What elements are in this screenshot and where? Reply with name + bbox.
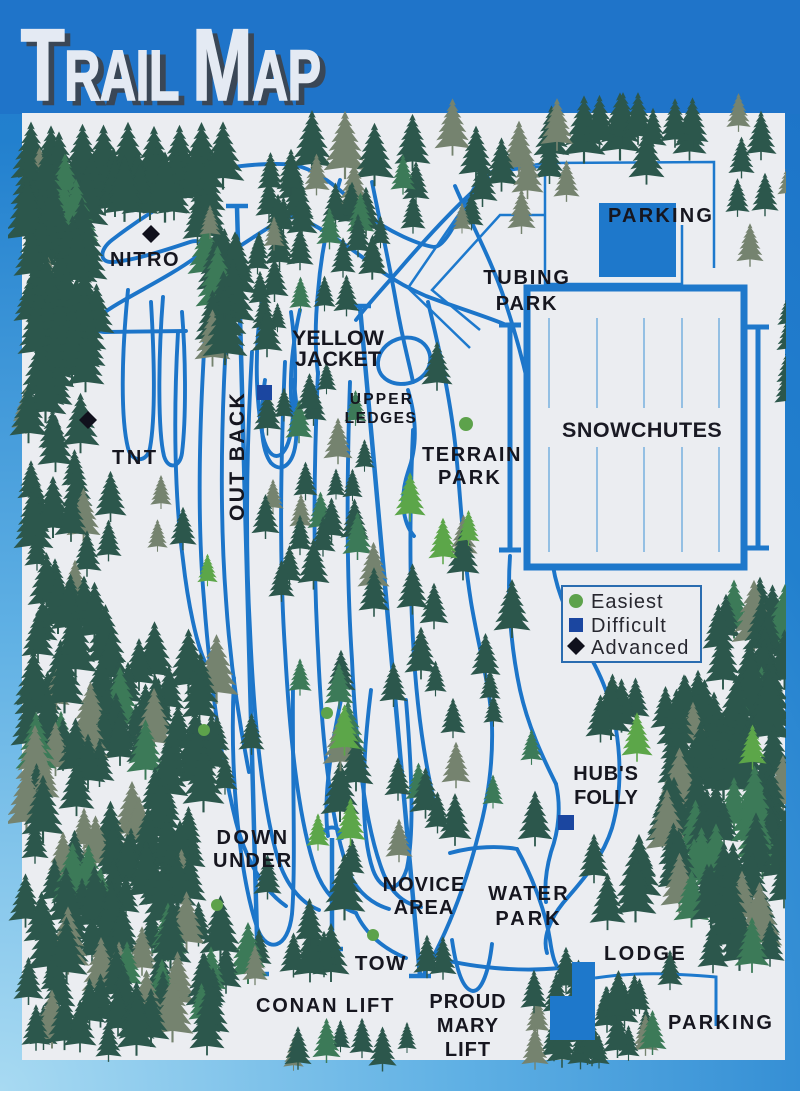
svg-text:UPPER: UPPER xyxy=(350,391,414,408)
svg-text:LODGE: LODGE xyxy=(604,943,687,965)
svg-text:AREA: AREA xyxy=(394,897,455,919)
svg-text:DOWN: DOWN xyxy=(217,827,290,849)
svg-text:TERRAIN: TERRAIN xyxy=(422,444,522,466)
svg-text:PARK: PARK xyxy=(496,293,558,315)
svg-text:MARY: MARY xyxy=(437,1015,499,1037)
svg-text:FOLLY: FOLLY xyxy=(574,787,638,809)
svg-text:SNOWCHUTES: SNOWCHUTES xyxy=(562,418,722,442)
svg-text:WATER: WATER xyxy=(488,883,570,905)
svg-text:TNT: TNT xyxy=(112,447,159,469)
svg-text:UNDER: UNDER xyxy=(213,850,293,872)
svg-text:CONAN LIFT: CONAN LIFT xyxy=(256,995,395,1017)
svg-text:PARK: PARK xyxy=(495,908,562,930)
svg-text:NOVICE: NOVICE xyxy=(383,874,466,896)
svg-text:JACKET: JACKET xyxy=(295,347,381,371)
svg-text:LIFT: LIFT xyxy=(445,1039,491,1061)
svg-text:NITRO: NITRO xyxy=(110,249,180,271)
svg-text:PARK: PARK xyxy=(438,467,502,489)
svg-text:PARKING: PARKING xyxy=(608,205,714,227)
svg-text:Advanced: Advanced xyxy=(591,637,690,659)
svg-text:Easiest: Easiest xyxy=(591,591,664,613)
svg-text:LEDGES: LEDGES xyxy=(345,410,418,427)
svg-text:Difficult: Difficult xyxy=(591,615,667,637)
svg-text:TUBING: TUBING xyxy=(483,267,570,289)
svg-text:PROUD: PROUD xyxy=(429,991,506,1013)
svg-text:TOW: TOW xyxy=(355,952,407,975)
svg-text:OUT BACK: OUT BACK xyxy=(226,391,249,521)
svg-text:HUB'S: HUB'S xyxy=(573,763,638,785)
svg-text:PARKING: PARKING xyxy=(668,1012,774,1034)
